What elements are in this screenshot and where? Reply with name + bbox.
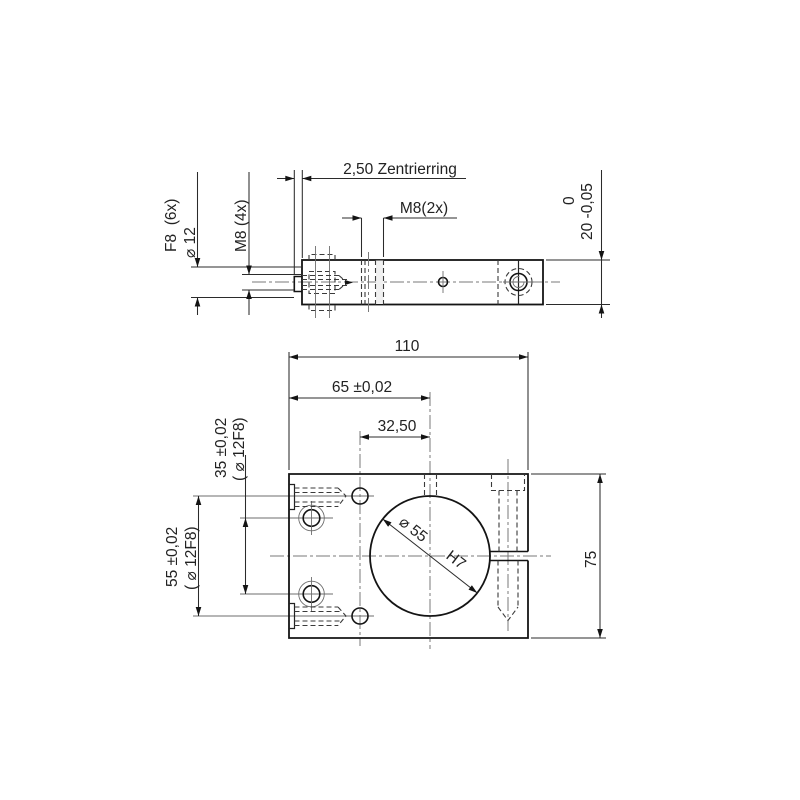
dim-55: 55 ±0,02 ( ⌀ 12F8) <box>164 496 201 616</box>
dim-55-label: 55 ±0,02 <box>164 527 181 587</box>
dim-d12-label: ⌀ 12 <box>182 227 199 258</box>
dim-35-label: 35 ±0,02 <box>213 418 230 478</box>
dim-m8-4x: M8 (4x) <box>233 172 302 315</box>
counterbored-hole-bottom <box>299 577 325 611</box>
dim-65: 65 ±0,02 <box>289 379 430 401</box>
dim-d12-class-label: F8 (6x) <box>163 199 180 252</box>
dim-zentrierring-label: 2,50 Zentrierring <box>343 161 457 178</box>
dim-35-holes-label: ( ⌀ 12F8) <box>231 417 248 481</box>
clamp-hole-side <box>498 260 534 305</box>
dim-bore-label: ⌀ 55 <box>396 513 431 545</box>
hidden-thread-front-top <box>289 485 346 510</box>
dim-width-110: 110 <box>289 338 528 470</box>
dim-m8-4x-label: M8 (4x) <box>233 199 250 252</box>
side-view: 2,50 Zentrierring M8(2x) F8 (6x) ⌀ 12 <box>163 161 610 318</box>
dim-width-label: 110 <box>395 338 420 355</box>
dim-thickness-upper-label: 0 <box>561 196 578 205</box>
technical-drawing-page: 2,50 Zentrierring M8(2x) F8 (6x) ⌀ 12 <box>0 0 800 800</box>
dim-m8-2x-label: M8(2x) <box>400 200 448 217</box>
dim-m8-2x: M8(2x) <box>342 200 457 257</box>
thread-tip-arrow <box>345 280 353 285</box>
dim-thickness-label: 20 -0,05 <box>579 183 596 240</box>
dim-65-label: 65 ±0,02 <box>332 379 392 396</box>
front-view: ⌀ 55 H7 110 65 ±0,02 32,50 <box>164 338 606 649</box>
dim-thickness: 0 20 -0,05 <box>546 170 610 318</box>
dim-3250-label: 32,50 <box>378 418 417 435</box>
dim-55-holes-label: ( ⌀ 12F8) <box>183 526 200 590</box>
dim-height-label: 75 <box>583 551 600 568</box>
zentrierring-step <box>294 277 302 292</box>
dim-35: 35 ±0,02 ( ⌀ 12F8) <box>213 417 248 594</box>
dim-3250: 32,50 <box>360 418 430 440</box>
drawing-canvas: 2,50 Zentrierring M8(2x) F8 (6x) ⌀ 12 <box>0 0 800 800</box>
